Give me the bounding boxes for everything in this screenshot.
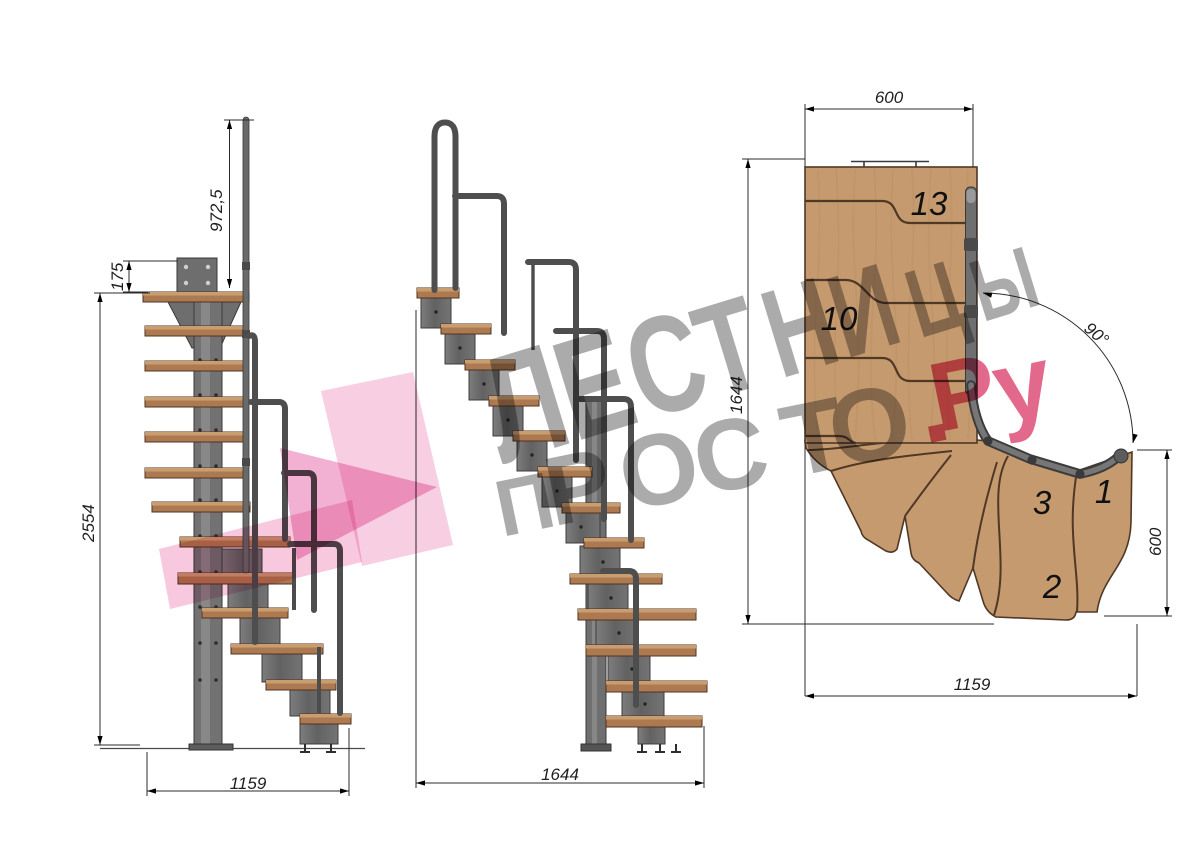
svg-text:175: 175	[108, 262, 127, 291]
svg-text:600: 600	[1146, 527, 1165, 556]
svg-text:2554: 2554	[79, 504, 98, 543]
svg-text:13: 13	[911, 185, 948, 222]
svg-text:1159: 1159	[954, 675, 991, 694]
svg-text:1644: 1644	[541, 765, 579, 784]
svg-text:972,5: 972,5	[207, 189, 226, 232]
svg-text:2: 2	[1042, 568, 1061, 605]
svg-text:1159: 1159	[230, 774, 267, 793]
svg-text:600: 600	[875, 88, 904, 107]
svg-text:1: 1	[1095, 473, 1113, 510]
svg-text:3: 3	[1033, 484, 1052, 521]
